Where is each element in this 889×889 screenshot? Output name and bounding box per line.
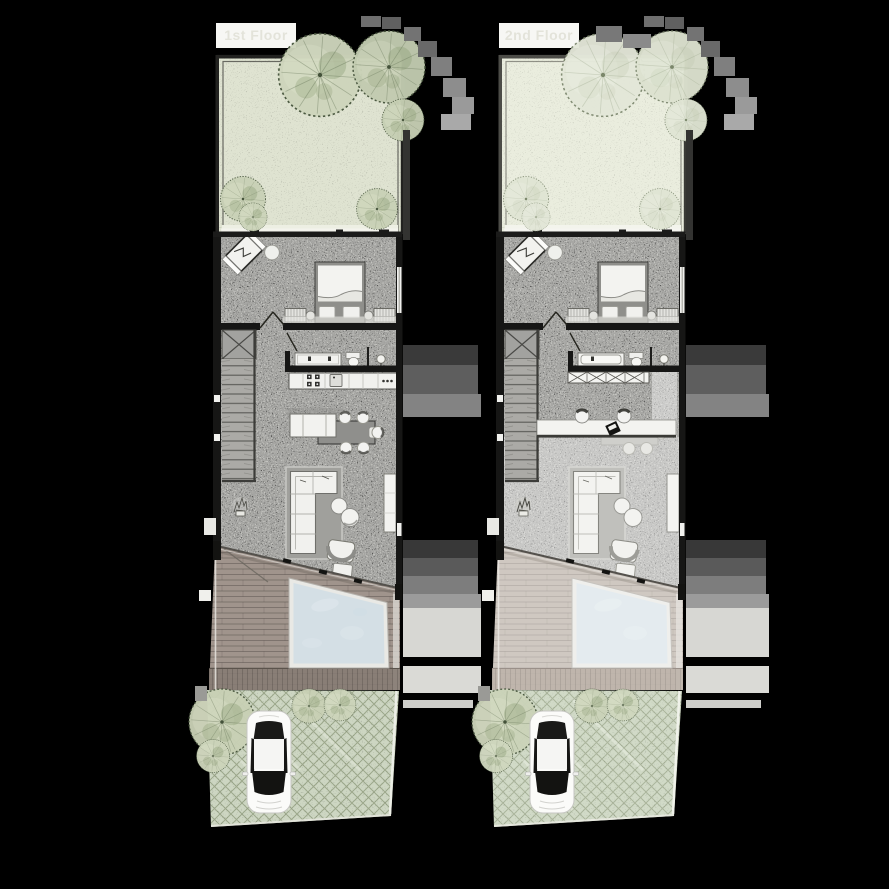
svg-text:1st Floor: 1st Floor [224, 27, 288, 43]
svg-text:2nd Floor: 2nd Floor [505, 27, 573, 43]
